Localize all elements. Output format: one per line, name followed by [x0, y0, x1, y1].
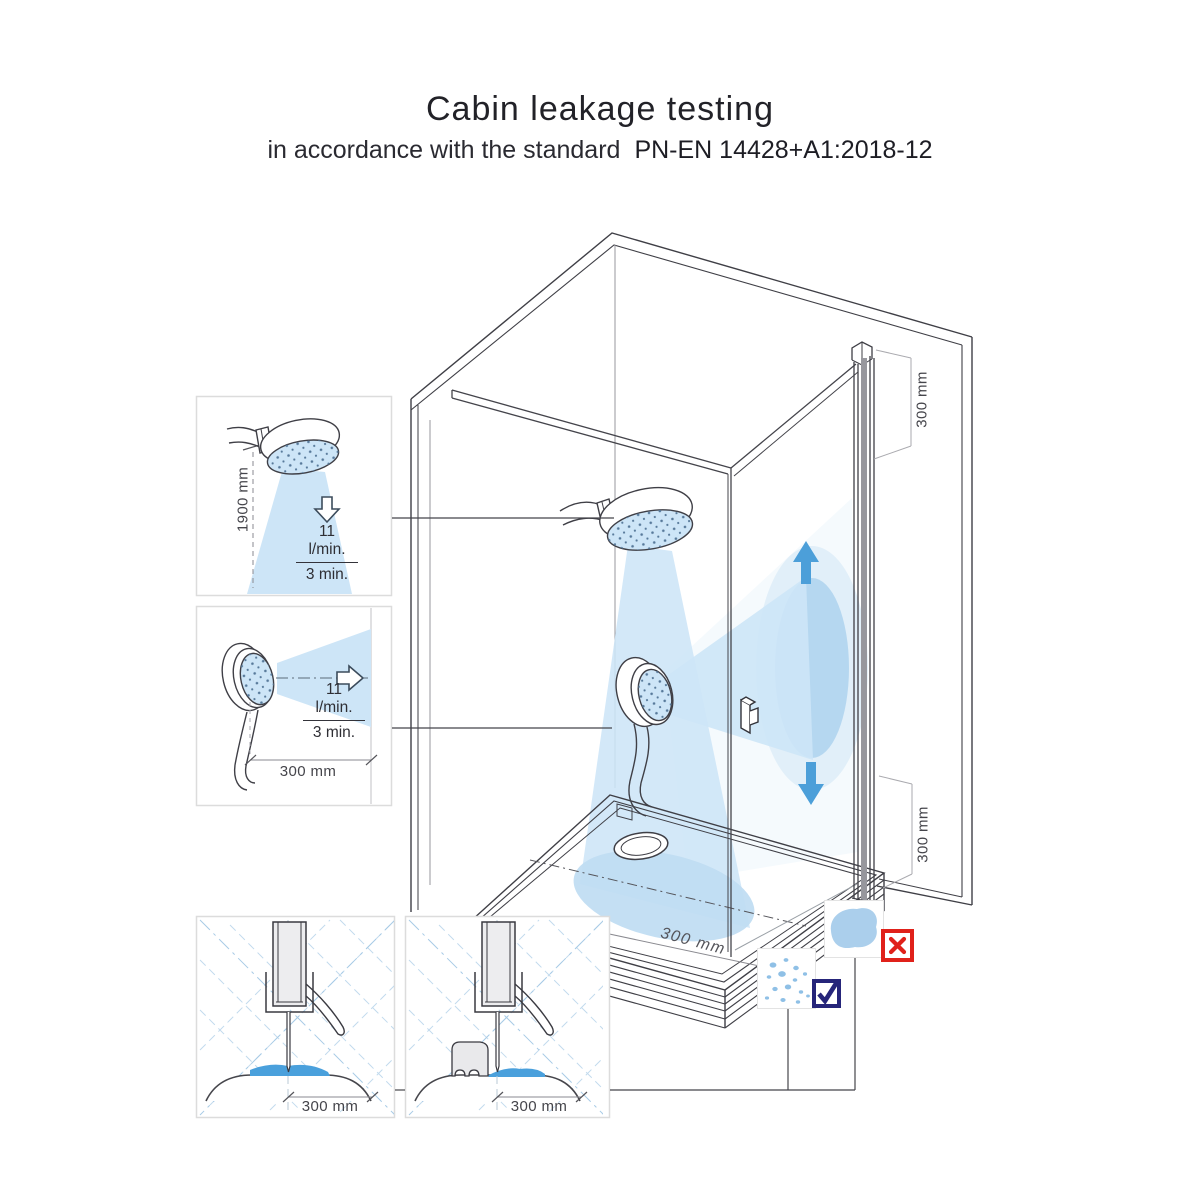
diagram-page: Cabin leakage testing in accordance with… — [0, 0, 1200, 1200]
flow-spec-vertical: 11 l/min. 3 min. — [296, 523, 358, 584]
water-drops-icon — [758, 949, 815, 1008]
pass-check-icon — [812, 979, 841, 1008]
leak-outside-box — [824, 900, 884, 958]
dim-door-top: 300 mm — [915, 350, 930, 450]
drops-inside-box — [757, 948, 816, 1009]
duration-label: 3 min. — [296, 563, 358, 584]
spray-fills — [565, 498, 868, 956]
flow-rate-label: 11 l/min. — [296, 523, 358, 563]
fail-cross-icon — [881, 929, 914, 962]
inset-bottom-seal-left — [197, 917, 396, 1118]
diagram-canvas — [0, 0, 1200, 1200]
flow-rate-label: 11 l/min. — [303, 681, 365, 721]
dim-seal-right: 300 mm — [489, 1099, 589, 1114]
page-title: Cabin leakage testing — [0, 90, 1200, 129]
dimension-brackets — [874, 350, 912, 888]
standard-code: PN-EN 14428+A1:2018-12 — [634, 136, 932, 164]
inset-vertical-spray — [197, 397, 392, 596]
dim-door-bottom: 300 mm — [916, 785, 931, 885]
page-subtitle: in accordance with the standardPN-EN 144… — [0, 136, 1200, 165]
subtitle-text: in accordance with the standard — [267, 136, 620, 164]
dim-shower-height: 1900 mm — [236, 450, 251, 550]
water-puddle-icon — [825, 901, 883, 957]
inset-bottom-seal-right — [406, 917, 610, 1118]
dim-seal-left: 300 mm — [280, 1099, 380, 1114]
flow-spec-horizontal: 11 l/min. 3 min. — [303, 681, 365, 742]
duration-label: 3 min. — [303, 721, 365, 742]
dim-nozzle-distance: 300 mm — [258, 764, 358, 779]
